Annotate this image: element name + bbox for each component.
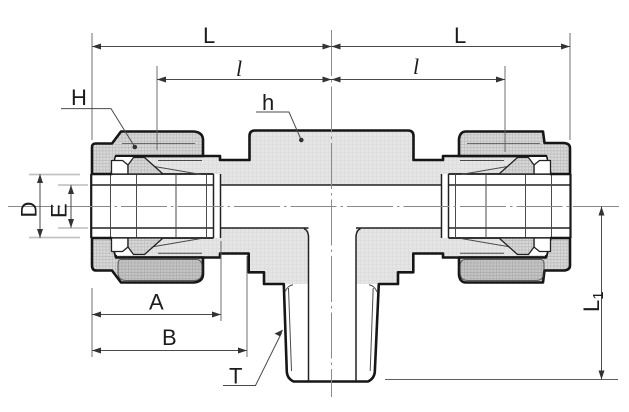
svg-text:L: L bbox=[203, 23, 215, 48]
svg-text:l: l bbox=[413, 54, 419, 79]
svg-text:H: H bbox=[71, 85, 87, 110]
svg-text:A: A bbox=[149, 290, 164, 315]
svg-text:l: l bbox=[236, 56, 242, 81]
svg-text:E: E bbox=[47, 203, 72, 218]
svg-text:D: D bbox=[17, 202, 42, 218]
svg-text:h: h bbox=[262, 90, 274, 115]
svg-text:B: B bbox=[162, 325, 177, 350]
svg-text:L: L bbox=[454, 23, 466, 48]
svg-text:T: T bbox=[229, 364, 242, 389]
